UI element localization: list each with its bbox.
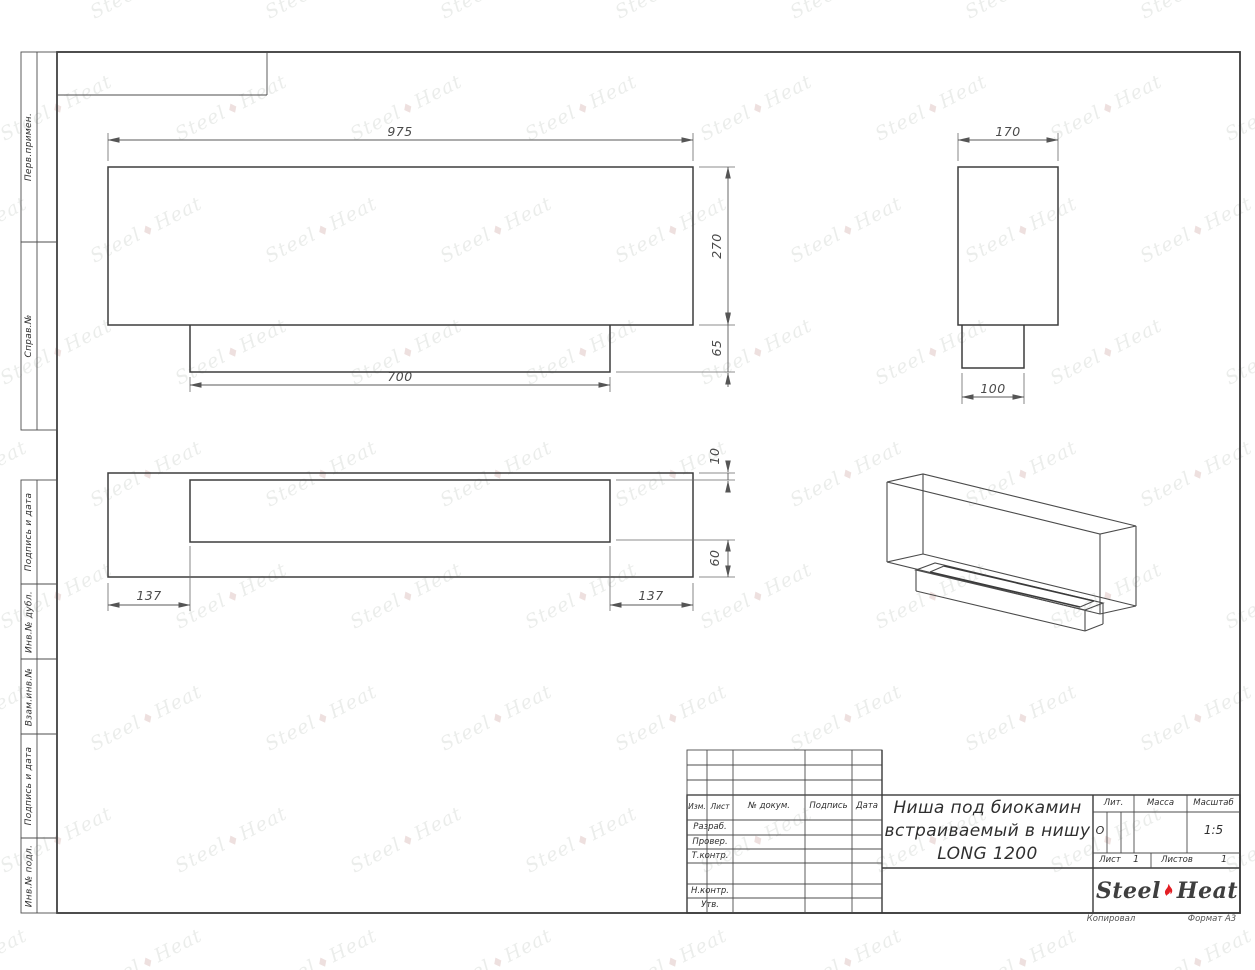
sheet-frame — [57, 52, 1240, 913]
footer-format: Формат А3 — [1172, 915, 1252, 924]
isometric-view — [887, 474, 1136, 631]
dimension-depth: 170 — [995, 124, 1020, 139]
row-razrab: Разраб. — [687, 823, 733, 832]
dimension-insert-depth: 100 — [980, 381, 1005, 396]
margin-label-vzam-inv: Взам.инв.№ — [22, 659, 36, 734]
masshtab-value: 1:5 — [1187, 824, 1240, 837]
massa-label: Масса — [1134, 799, 1187, 808]
row-nkontr: Н.контр. — [687, 887, 733, 896]
listov-value: 1 — [1214, 855, 1234, 865]
footer-kopiroval: Копировал — [1071, 915, 1151, 924]
header-data: Дата — [852, 802, 882, 811]
list-value: 1 — [1128, 855, 1144, 865]
plan-view: 10 60 137 137 — [108, 448, 735, 611]
masshtab-label: Масштаб — [1187, 799, 1240, 808]
drawing-sheet: Steel♦HeatSteel♦HeatSteel♦HeatSteel♦Heat… — [0, 0, 1255, 970]
dimension-right-offset: 137 — [638, 588, 663, 603]
side-view: 170 100 — [958, 124, 1058, 404]
logo-word-heat: Heat — [1177, 878, 1238, 904]
dimension-insert-height: 65 — [709, 340, 724, 357]
list-label: Лист — [1095, 856, 1125, 865]
header-podpis: Подпись — [805, 802, 852, 811]
header-doc-no: № докум. — [733, 802, 805, 811]
logo-word-steel: Steel — [1096, 878, 1161, 904]
steel-heat-logo: Steel Heat — [1096, 871, 1238, 910]
margin-label-perv-primen: Перв.примен. — [22, 52, 36, 242]
margin-label-sprav-no: Справ.№ — [22, 242, 36, 430]
dimension-front-height: 270 — [709, 233, 724, 258]
dimension-bottom-offset: 60 — [707, 550, 722, 567]
lit-value: О — [1093, 825, 1107, 837]
drawing-title-line3: LONG 1200 — [884, 845, 1091, 864]
listov-label: Листов — [1153, 856, 1201, 865]
dimension-left-offset: 137 — [136, 588, 161, 603]
drawing-title-line2: встраиваемый в нишу — [884, 822, 1091, 841]
lit-label: Лит. — [1093, 799, 1134, 808]
row-tkontr: Т.контр. — [687, 852, 733, 861]
flame-icon — [1164, 879, 1174, 902]
dimension-top-offset: 10 — [707, 448, 722, 465]
margin-label-inv-podl: Инв.№ подл. — [22, 838, 36, 913]
header-izm: Изм. — [687, 803, 707, 811]
dimension-insert-width: 700 — [387, 369, 412, 384]
margin-label-inv-dubl: Инв.№ дубл. — [22, 584, 36, 659]
drawing-title-line1: Ниша под биокамин — [884, 799, 1091, 818]
dimension-front-width: 975 — [387, 124, 412, 139]
front-view: 975 270 65 700 — [108, 124, 735, 392]
row-prover: Провер. — [687, 838, 733, 847]
header-list: Лист — [707, 803, 733, 811]
row-utv: Утв. — [687, 901, 733, 910]
margin-label-podpis-data-1: Подпись и дата — [22, 480, 36, 584]
margin-label-podpis-data-2: Подпись и дата — [22, 734, 36, 838]
